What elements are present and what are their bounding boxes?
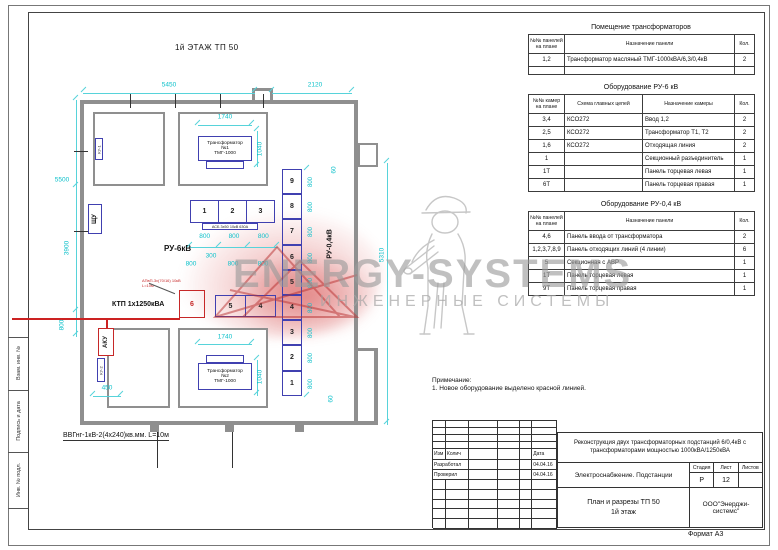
dim-1040-t2: 1040 [257, 370, 264, 384]
asb-cable-label: АСБ 3х50 10кВ 630А [212, 225, 248, 229]
stamp-cell [532, 509, 557, 519]
table-row: 2,5КСО272Трансформатор Т1, Т22 [529, 127, 755, 140]
table-cell: Ввод 1,2 [643, 114, 735, 127]
stamp-cell [520, 470, 532, 480]
table-cell [565, 67, 735, 75]
table-cell: КСО272 [565, 114, 643, 127]
stamp-cell [532, 500, 557, 510]
ru04-cell: 1 [282, 371, 302, 396]
stamp-cell [469, 421, 499, 428]
table-cell: 2 [735, 231, 755, 244]
stamp-cell [446, 490, 469, 500]
table-header-cell: №№ панелей на плане [529, 35, 565, 54]
stamp-cell [433, 421, 446, 428]
wall-jut [374, 348, 378, 425]
schu-box: ЩУ [88, 204, 102, 234]
stamp-cell [446, 421, 469, 428]
dim-label: 800 [308, 353, 314, 363]
ru04-row: 9800 [282, 170, 332, 195]
stamp-cell [446, 428, 469, 435]
wall-top [80, 100, 358, 104]
table-cell: 1 [529, 153, 565, 166]
stamp-cell [433, 509, 446, 519]
stamp-cell [446, 435, 469, 442]
table-cell: 6Т [529, 179, 565, 192]
stamp-cell: Разработал [433, 460, 469, 470]
axis-mark [175, 94, 176, 108]
table-header-cell: Назначение камеры [643, 95, 735, 114]
table-cell: Панель ввода от трансформатора [565, 231, 735, 244]
table-cell: Панель торцевая правая [643, 179, 735, 192]
table-cell: Трансформатор масляный ТМГ-1000кВА/6,3/0… [565, 54, 735, 67]
stamp-cell [446, 480, 469, 490]
stamp-cell [520, 449, 532, 460]
plan-title: 1й ЭТАЖ ТП 50 [175, 43, 238, 52]
ktp-label: КТП 1х1250кВА [112, 301, 164, 308]
title-block-signatures: ИзмКоличДатаРазработал04.04.16Проверил04… [432, 420, 557, 528]
table-cell [565, 153, 643, 166]
table-row: 1ТПанель торцевая левая1 [529, 166, 755, 179]
red-feeder-line [12, 318, 180, 320]
stamp-cell [520, 442, 532, 449]
stamp-cell [446, 442, 469, 449]
axis-mark [220, 94, 221, 108]
axis-mark [263, 94, 264, 108]
stamp-cell [433, 519, 446, 529]
side-label-podpis: Подпись и дата [16, 401, 22, 441]
dim-label: 800 [308, 202, 314, 212]
stamp-cell [520, 435, 532, 442]
stamp-cell [532, 519, 557, 529]
bottom-cable-label: ВВГнг-1кВ-2(4х240)кв.мм. L=10м [63, 432, 169, 441]
ku1-box: КУ-1 [95, 138, 103, 160]
dimension-line [198, 344, 252, 345]
stamp-cell [469, 460, 499, 470]
brand-watermark: ENERGY-SYSTEMS [233, 252, 632, 297]
table-cell: 4,6 [529, 231, 565, 244]
stamp-cell: 04.04.16 [532, 460, 557, 470]
stamp-cell [520, 421, 532, 428]
stamp-cell [469, 490, 499, 500]
dim-1740-t2: 1740 [218, 334, 232, 341]
stamp-cell: Дата [532, 449, 557, 460]
ku1-label: КУ-1 [97, 145, 102, 153]
sheets-value [738, 473, 762, 488]
dim-1040-t1: 1040 [257, 142, 264, 156]
stamp-cell [446, 500, 469, 510]
table-row: 3,4КСО272Ввод 1,22 [529, 114, 755, 127]
dim-60-bottom: 60 [328, 395, 335, 402]
table-title: Оборудование РУ-0,4 кВ [528, 201, 754, 208]
margin-divider [8, 452, 28, 453]
plan-cell: 1 [190, 200, 219, 223]
company-name: ООО"Энерджи-системс" [689, 488, 762, 527]
axis-mark [74, 151, 88, 152]
table-header-cell: №№ панелей на плане [529, 212, 565, 231]
stamp-cell [498, 480, 520, 490]
stamp-cell [498, 449, 520, 460]
schu-label: ЩУ [92, 214, 98, 224]
title-block: ИзмКоличДатаРазработал04.04.16Проверил04… [432, 420, 763, 528]
dimension-line [272, 93, 352, 94]
table-header-cell: Кол. [735, 95, 755, 114]
stamp-cell [469, 519, 499, 529]
table-cell [529, 67, 565, 75]
table-cell: 1,6 [529, 140, 565, 153]
dim-5500: 5500 [55, 177, 69, 184]
dimension-line [93, 396, 121, 397]
sheets-header: Листов [738, 463, 762, 473]
pilaster-mark [150, 425, 159, 432]
stamp-cell [520, 428, 532, 435]
stamp-cell [469, 449, 499, 460]
side-label-vzam: Взам. инв. № [16, 346, 22, 380]
stamp-cell [498, 460, 520, 470]
table-cell: 1Т [529, 166, 565, 179]
table-header-cell: Назначение панели [565, 35, 735, 54]
room-top-left [93, 112, 165, 186]
dim-800-mid-a: 800 [186, 261, 197, 268]
dimension-line [83, 93, 255, 94]
table-cell: 1 [735, 270, 755, 283]
wall-porch [358, 143, 378, 167]
stage-value: Р [689, 473, 713, 488]
table-cell [735, 67, 755, 75]
transformer1-tab [206, 161, 244, 169]
dim-3900: 3900 [64, 241, 71, 255]
stamp-cell [498, 442, 520, 449]
table-cell: Секционный разъединитель [643, 153, 735, 166]
dimension-line [198, 125, 252, 126]
stamp-cell [446, 519, 469, 529]
stamp-cell [532, 428, 557, 435]
stamp-cell [433, 442, 446, 449]
drawing-sheet: Взам. инв. № Подпись и дата Инв. № подл.… [0, 0, 778, 550]
transformer1-label: Трансформатор №1 ТМГ-1000 [207, 141, 243, 157]
stamp-cell [469, 435, 499, 442]
stamp-cell [469, 442, 499, 449]
stamp-cell [433, 500, 446, 510]
object-name: Электроснабжение. Подстанции [558, 463, 689, 488]
red-feeder-drop [106, 319, 108, 328]
table-cell: 1 [735, 153, 755, 166]
table-cell [565, 166, 643, 179]
table-cell: 1 [735, 283, 755, 296]
title-block-main: Реконструкция двух трансформаторных подс… [557, 432, 763, 528]
table-cell: 1 [735, 257, 755, 270]
transformer2-label: Трансформатор №2 ТМГ-1000 [207, 369, 243, 385]
table-cell: 2 [735, 114, 755, 127]
table-cell: 2 [735, 140, 755, 153]
stamp-cell [520, 519, 532, 529]
table-cell: 1 [735, 166, 755, 179]
table-header-cell: №№ камер на плане [529, 95, 565, 114]
table-cell: 2,5 [529, 127, 565, 140]
dimension-line [76, 100, 77, 337]
axis-mark [74, 231, 88, 232]
table-cell: Отходящая линия [643, 140, 735, 153]
stamp-cell [532, 421, 557, 428]
dim-label: 800 [308, 378, 314, 388]
margin-divider [8, 390, 28, 391]
stamp-cell [469, 500, 499, 510]
table-title: Помещение трансформаторов [528, 24, 754, 31]
ku2-label: КУ-2 [99, 366, 104, 374]
dim-5450: 5450 [162, 82, 176, 89]
stamp-cell [520, 460, 532, 470]
ktp-cell-6: 6 [179, 290, 205, 318]
stamp-cell [498, 470, 520, 480]
stamp-cell [498, 435, 520, 442]
transformer2-tab [206, 355, 244, 363]
margin-divider [8, 508, 28, 509]
stamp-cell: Колич [446, 449, 469, 460]
aku-label: АКУ [103, 336, 109, 348]
stamp-cell [520, 500, 532, 510]
stamp-cell [469, 470, 499, 480]
dim-1740-t1: 1740 [218, 114, 232, 121]
table-header-cell: Кол. [735, 35, 755, 54]
ru04-cell: 8 [282, 194, 302, 219]
transformer1-box: Трансформатор №1 ТМГ-1000 [198, 136, 252, 161]
dim-2120: 2120 [308, 82, 322, 89]
asb-cable-tag: АСБ 3х50 10кВ 630А [202, 223, 258, 230]
drawing-title: План и разрезы ТП 50 1й этаж [558, 488, 689, 527]
table-cell: КСО272 [565, 127, 643, 140]
table-cell [565, 179, 643, 192]
table-cell: 1,2 [529, 54, 565, 67]
stamp-cell: Проверил [433, 470, 469, 480]
stamp-cell [498, 509, 520, 519]
ru04-row: 2800 [282, 346, 332, 371]
table-row: 1Секционный разъединитель1 [529, 153, 755, 166]
table-header-cell: Назначение панели [565, 212, 735, 231]
table-row [529, 67, 755, 75]
axis-mark [130, 94, 131, 108]
ru04-row: 8800 [282, 195, 332, 220]
ru04-cell: 9 [282, 169, 302, 194]
stamp-cell [433, 435, 446, 442]
table-cell: 2 [735, 54, 755, 67]
ru6-top-cells: 123 [190, 200, 274, 223]
pilaster-mark [295, 425, 304, 432]
dim-450: 450 [102, 385, 113, 392]
project-name: Реконструкция двух трансформаторных подс… [558, 433, 762, 463]
table-row: 1,6КСО272Отходящая линия2 [529, 140, 755, 153]
dim-800-left: 800 [59, 320, 66, 331]
table-row: 6ТПанель торцевая правая1 [529, 179, 755, 192]
stamp-cell [433, 490, 446, 500]
equipment-table: Оборудование РУ-6 кВ№№ камер на планеСхе… [528, 84, 754, 192]
plan-cell: 2 [218, 200, 247, 223]
stamp-cell [520, 490, 532, 500]
table-header-cell: Схема главных цепей [565, 95, 643, 114]
table-row: 1,2Трансформатор масляный ТМГ-1000кВА/6,… [529, 54, 755, 67]
stamp-cell [446, 509, 469, 519]
dim-label: 800 [308, 177, 314, 187]
stamp-cell [433, 480, 446, 490]
table-cell: Панель торцевая левая [643, 166, 735, 179]
stamp-cell: 04.04.16 [532, 470, 557, 480]
table-header-cell: Кол. [735, 212, 755, 231]
note-block: Примечание: 1. Новое оборудование выделе… [432, 377, 586, 393]
sheet-value: 12 [713, 473, 737, 488]
table-cell: Трансформатор Т1, Т2 [643, 127, 735, 140]
stamp-cell [532, 435, 557, 442]
table-row: 4,6Панель ввода от трансформатора2 [529, 231, 755, 244]
stamp-cell [469, 428, 499, 435]
format-label: Формат А3 [688, 531, 723, 538]
transformer2-box: Трансформатор №2 ТМГ-1000 [198, 363, 252, 390]
stamp-cell [498, 519, 520, 529]
stamp-cell [498, 490, 520, 500]
margin-divider [8, 337, 28, 338]
brand-tagline-watermark: ИНЖЕНЕРНЫЕ СИСТЕМЫ [320, 293, 614, 311]
stamp-cell [498, 421, 520, 428]
stamp-cell [532, 490, 557, 500]
stamp-cell [433, 428, 446, 435]
stamp-cell [520, 480, 532, 490]
stamp-cell [532, 480, 557, 490]
stamp-cell [498, 500, 520, 510]
table-cell: 6 [735, 244, 755, 257]
equipment-table: Помещение трансформаторов№№ панелей на п… [528, 24, 754, 75]
table-cell: 2 [735, 127, 755, 140]
ku2-box: КУ-2 [97, 358, 105, 382]
stamp-cell [469, 480, 499, 490]
table-title: Оборудование РУ-6 кВ [528, 84, 754, 91]
note-title: Примечание: [432, 377, 586, 385]
table-cell: 3,4 [529, 114, 565, 127]
stamp-cell [532, 442, 557, 449]
aku-box: АКУ [98, 328, 114, 356]
table-cell: 1 [735, 179, 755, 192]
side-label-inv: Инв. № подл. [16, 463, 22, 497]
wall-left [80, 100, 84, 425]
note-line: 1. Новое оборудование выделено красной л… [432, 385, 586, 393]
stamp-cell [498, 428, 520, 435]
sheet-header: Лист [713, 463, 737, 473]
ru04-cell: 2 [282, 345, 302, 370]
table-cell: КСО272 [565, 140, 643, 153]
dim-60-top: 60 [331, 166, 338, 173]
plan-cell: 3 [246, 200, 275, 223]
stage-header: Стадия [689, 463, 713, 473]
stamp-cell [520, 509, 532, 519]
stamp-cell [469, 509, 499, 519]
pilaster-mark [225, 425, 234, 432]
dim-label: 800 [308, 328, 314, 338]
stamp-cell: Изм [433, 449, 446, 460]
